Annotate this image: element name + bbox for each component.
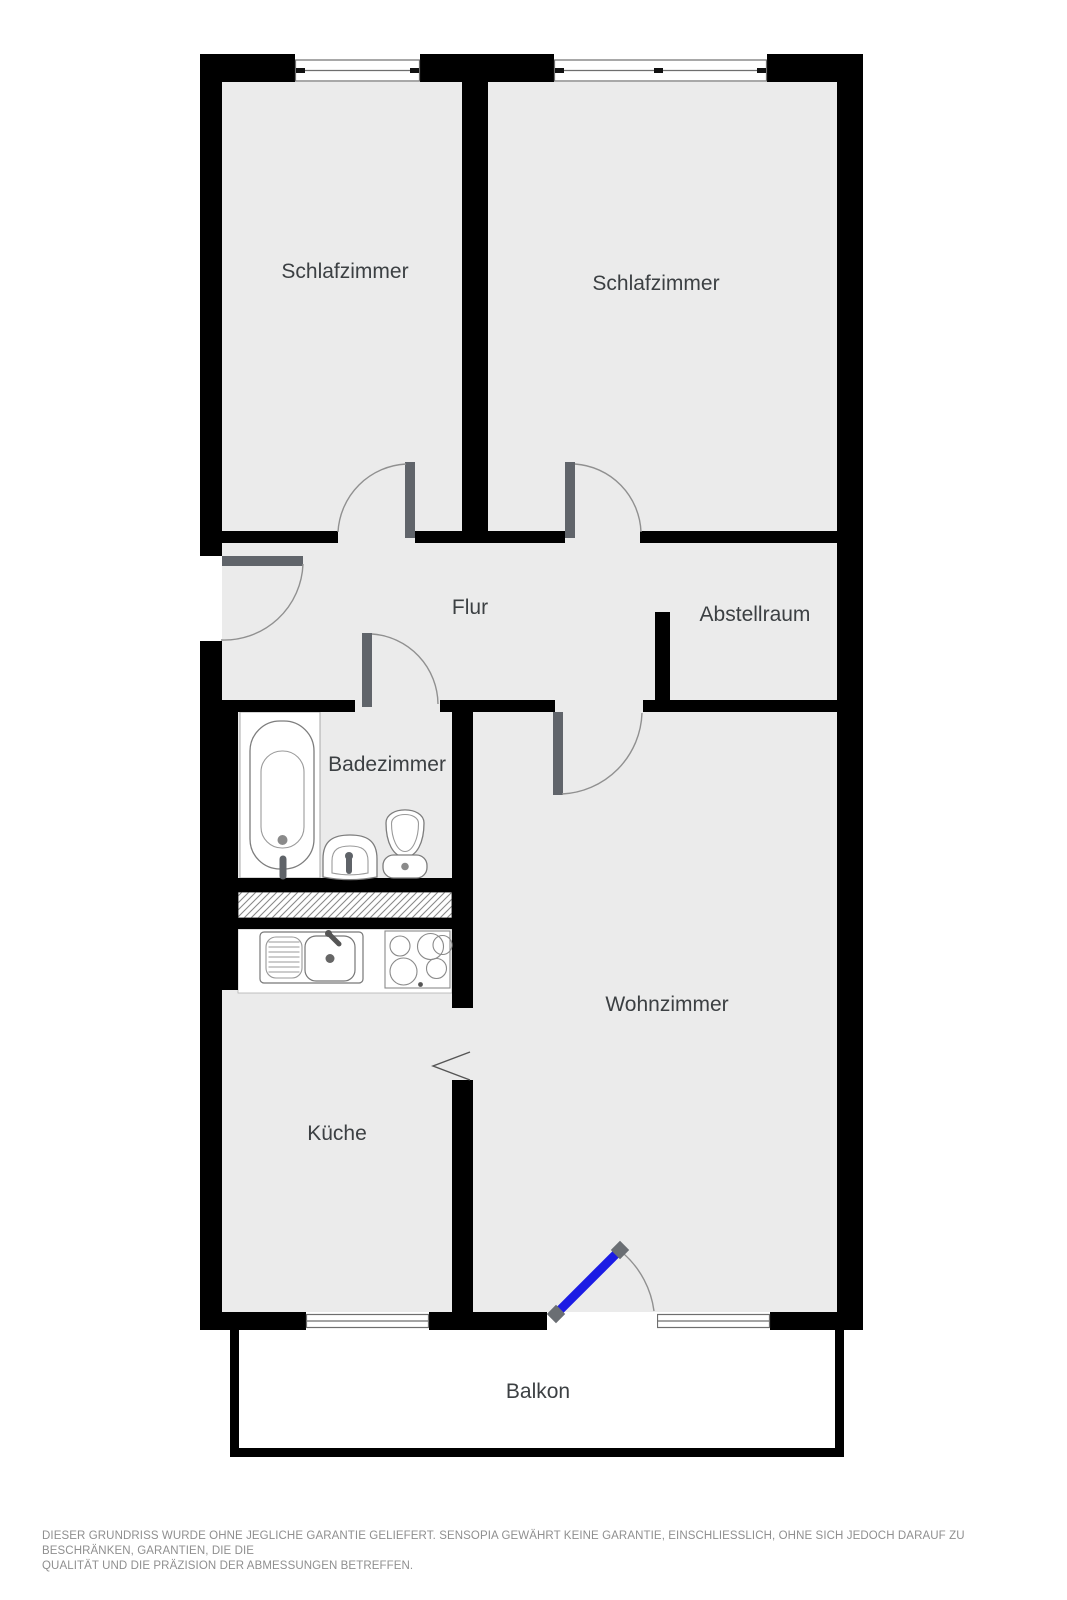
wall-segment (837, 54, 863, 1330)
disclaimer: DIESER GRUNDRISS WURDE OHNE JEGLICHE GAR… (42, 1529, 1037, 1574)
washbasin (323, 835, 377, 880)
room-label-balkon: Balkon (506, 1380, 570, 1403)
kitchen-sink (260, 930, 363, 983)
bathtub (250, 721, 314, 876)
bedroom-right-window (554, 54, 767, 82)
wall-segment (222, 918, 473, 929)
toilet (383, 810, 427, 878)
wall-segment (452, 1080, 473, 1312)
wall-segment (655, 612, 670, 700)
balcony-window (657, 1312, 770, 1330)
ventilation-shaft (238, 892, 452, 918)
room-label-wohnzimmer: Wohnzimmer (605, 993, 728, 1016)
disclaimer-line-1: DIESER GRUNDRISS WURDE OHNE JEGLICHE GAR… (42, 1529, 1037, 1559)
room-label-kueche: Küche (307, 1122, 367, 1145)
wall-segment (640, 531, 837, 543)
wall-segment (230, 1330, 239, 1457)
kitchen-window (306, 1312, 429, 1330)
wall-segment (200, 54, 222, 1330)
wall-segment (452, 712, 473, 1008)
entrance-opening (198, 556, 222, 641)
wall-segment (222, 531, 338, 543)
wall-segment (222, 700, 355, 712)
wall-segment (462, 82, 488, 543)
bedroom-left-window (295, 54, 420, 82)
wall-segment (415, 531, 462, 543)
room-label-flur: Flur (452, 596, 488, 619)
wall-segment (440, 700, 555, 712)
floor-plan: Schlafzimmer Schlafzimmer Flur Abstellra… (0, 0, 1067, 1600)
wall-segment (643, 700, 837, 712)
room-label-badezimmer: Badezimmer (328, 753, 446, 776)
wall-segment (488, 531, 565, 543)
disclaimer-line-2: QUALITÄT UND DIE PRÄZISION DER ABMESSUNG… (42, 1559, 1037, 1574)
wall-segment (835, 1330, 844, 1457)
room-label-schlafzimmer-links: Schlafzimmer (281, 260, 408, 283)
wall-segment (230, 1448, 844, 1457)
wall-segment (222, 712, 238, 990)
room-label-schlafzimmer-rechts: Schlafzimmer (592, 272, 719, 295)
stove-cooktop (385, 931, 452, 988)
room-label-abstellraum: Abstellraum (700, 603, 811, 626)
